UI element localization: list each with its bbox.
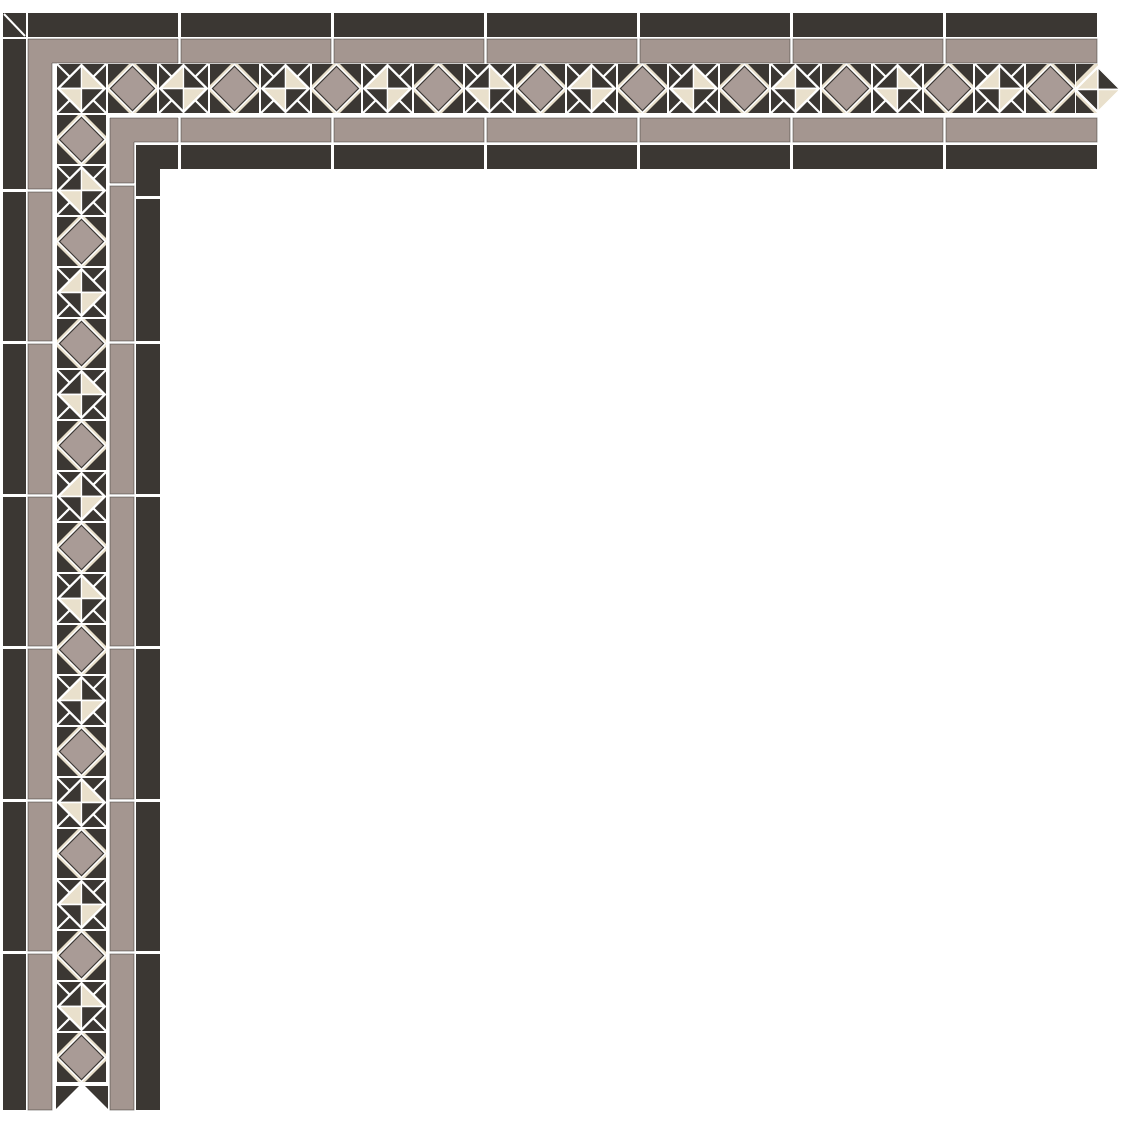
motif-tile-pinwheel (57, 268, 107, 318)
strip-tile (181, 118, 331, 142)
motif-tile-pinwheel (57, 676, 107, 726)
motif-tile-pinwheel (363, 64, 413, 114)
strip-tile (3, 39, 26, 189)
motif-tile-diamond (414, 64, 464, 114)
strip-tile (28, 649, 52, 799)
strip-tile (136, 954, 160, 1110)
strip-tile (334, 118, 484, 142)
motif-tile-pinwheel (975, 64, 1025, 114)
inner-dark-strip-vertical (136, 199, 160, 1110)
strip-tile (487, 13, 637, 37)
strip-tile (334, 145, 484, 169)
strip-tile (110, 344, 134, 494)
motif-tile-diamond (57, 829, 107, 879)
strip-tile (487, 39, 637, 63)
strip-tile (3, 954, 26, 1110)
motif-tile-diamond (57, 217, 107, 267)
motif-tile-pinwheel (57, 472, 107, 522)
strip-tile (136, 802, 160, 951)
strip-tile (3, 497, 26, 646)
motif-tile-diamond (210, 64, 260, 114)
strip-tile (28, 802, 52, 951)
motif-tile-pinwheel (873, 64, 923, 114)
strip-tile (110, 802, 134, 951)
victorian-tile-border-corner (0, 0, 1123, 1123)
strip-tile (793, 118, 943, 142)
motif-tile-pinwheel (465, 64, 515, 114)
motif-tile-diamond (720, 64, 770, 114)
strip-tile (28, 13, 178, 37)
strip-tile (640, 118, 790, 142)
outer-dark-strip-horizontal (28, 13, 1097, 37)
motif-tile-diamond (516, 64, 566, 114)
motif-tile-diamond (57, 931, 107, 981)
outer-corner-square-tile (3, 13, 26, 37)
strip-tile (110, 954, 134, 1110)
motif-tile-pinwheel (57, 880, 107, 930)
motif-tile-diamond (57, 115, 107, 165)
strip-tile (110, 186, 134, 341)
outer-dark-strip-vertical (3, 39, 26, 1110)
strip-tile (334, 39, 484, 63)
motif-tile-diamond (312, 64, 362, 114)
motif-tile-diamond (1026, 64, 1076, 114)
strip-tile (3, 802, 26, 951)
tile-border-svg (0, 0, 1123, 1123)
strip-tile (640, 13, 790, 37)
motif-tile-diamond (924, 64, 974, 114)
strip-tile (181, 145, 331, 169)
motif-tile-pinwheel (57, 64, 107, 114)
motif-tile-pinwheel (771, 64, 821, 114)
motif-tile-diamond (57, 1033, 107, 1083)
motif-tile-pinwheel (567, 64, 617, 114)
strip-tile (3, 344, 26, 494)
motif-tile-diamond (57, 625, 107, 675)
motif-tile-diamond (57, 319, 107, 369)
strip-tile (3, 649, 26, 799)
strip-tile (793, 39, 943, 63)
motif-tile-diamond (618, 64, 668, 114)
strip-tile (136, 497, 160, 646)
strip-tile (28, 954, 52, 1110)
motif-tile-diamond (57, 421, 107, 471)
motif-band-vertical (57, 115, 107, 1083)
strip-tile (793, 13, 943, 37)
strip-tile (110, 497, 134, 646)
motif-tile-diamond (57, 523, 107, 573)
strip-tile (487, 145, 637, 169)
strip-tile (181, 39, 331, 63)
motif-tile-pinwheel (261, 64, 311, 114)
strip-tile (136, 649, 160, 799)
strip-tile (640, 39, 790, 63)
strip-tile (334, 13, 484, 37)
motif-tile-pinwheel (159, 64, 209, 114)
strip-tile (793, 145, 943, 169)
strip-tile (136, 199, 160, 341)
strip-tile (946, 39, 1097, 63)
motif-tile-pinwheel (57, 370, 107, 420)
motif-tile-diamond (822, 64, 872, 114)
strip-tile (3, 192, 26, 341)
strip-tile (28, 344, 52, 494)
strip-tile (640, 145, 790, 169)
motif-tile-pinwheel (57, 166, 107, 216)
strip-tile (28, 192, 52, 341)
strip-tile (487, 118, 637, 142)
strip-tile (110, 649, 134, 799)
strip-tile (136, 344, 160, 494)
strip-tile (181, 13, 331, 37)
motif-tile-diamond (108, 64, 158, 114)
outer-grey-strip-vertical (28, 192, 52, 1110)
motif-tile-pinwheel (669, 64, 719, 114)
strip-tile (946, 118, 1097, 142)
motif-tile-pinwheel (57, 574, 107, 624)
motif-tile-pinwheel (57, 982, 107, 1032)
strip-tile (28, 497, 52, 646)
motif-tile-pinwheel (57, 778, 107, 828)
strip-tile (946, 145, 1097, 169)
strip-tile (946, 13, 1097, 37)
motif-tile-diamond (57, 727, 107, 777)
